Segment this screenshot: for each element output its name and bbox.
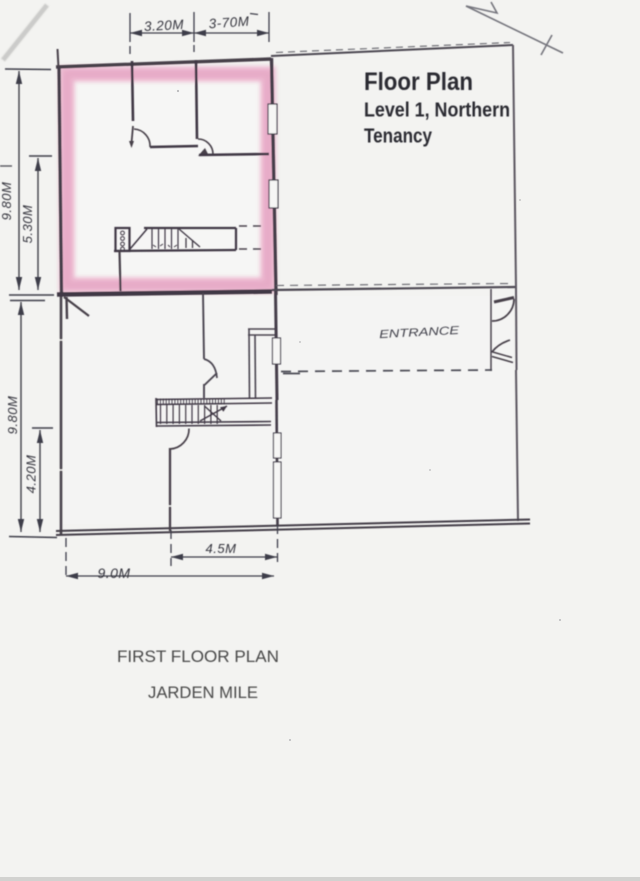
svg-text:Floor Plan: Floor Plan xyxy=(364,68,473,96)
svg-text:9.0M: 9.0M xyxy=(97,565,130,581)
svg-text:Tenancy: Tenancy xyxy=(364,126,433,148)
svg-text:9.80M: 9.80M xyxy=(0,182,14,221)
svg-text:3-70M: 3-70M xyxy=(208,14,250,32)
svg-text:Level 1, Northern: Level 1, Northern xyxy=(364,100,510,122)
svg-text:5.30M: 5.30M xyxy=(20,205,35,244)
svg-text:9.80M: 9.80M xyxy=(5,396,20,435)
svg-text:JARDEN MILE: JARDEN MILE xyxy=(148,684,258,702)
svg-text:FIRST FLOOR PLAN: FIRST FLOOR PLAN xyxy=(117,648,279,666)
svg-text:3.20M: 3.20M xyxy=(144,17,185,34)
svg-text:4.5M: 4.5M xyxy=(206,541,237,556)
svg-text:4.20M: 4.20M xyxy=(24,455,39,494)
